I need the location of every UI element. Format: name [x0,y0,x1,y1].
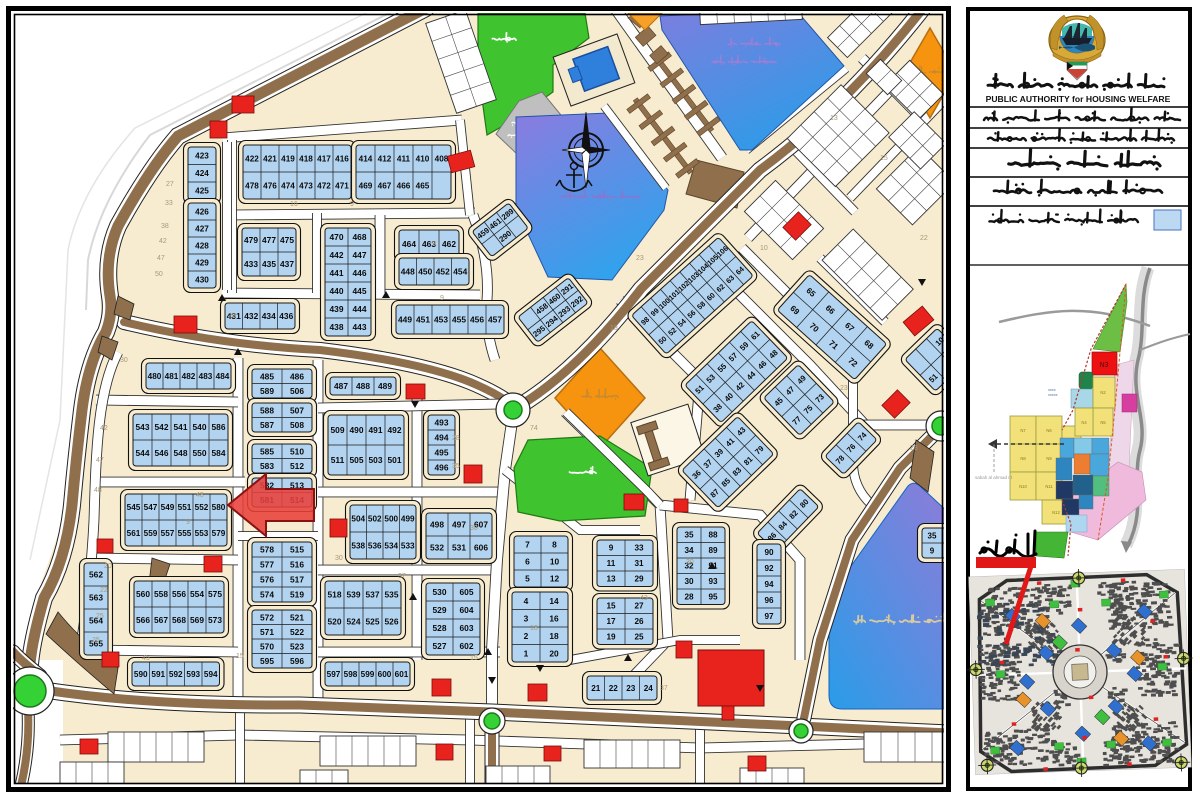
svg-text:38: 38 [161,223,169,230]
svg-text:510: 510 [290,446,304,456]
svg-text:432: 432 [244,311,258,321]
svg-text:sabah al ahmad rd: sabah al ahmad rd [975,475,1013,480]
svg-text:xxxxx: xxxxx [1048,393,1058,397]
svg-text:552: 552 [195,503,209,512]
svg-text:419: 419 [281,154,295,163]
svg-text:595: 595 [260,656,274,666]
svg-text:550: 550 [193,448,207,458]
svg-text:594: 594 [204,670,218,679]
svg-text:25: 25 [96,613,104,620]
svg-text:97: 97 [764,612,774,621]
svg-text:18: 18 [610,325,618,332]
svg-text:408: 408 [435,154,449,163]
svg-text:416: 416 [335,154,349,163]
svg-text:15: 15 [470,655,478,662]
svg-text:442: 442 [330,250,344,260]
svg-text:491: 491 [369,425,383,435]
svg-text:545: 545 [127,503,141,512]
svg-text:580: 580 [212,503,226,512]
svg-text:436: 436 [279,311,293,321]
svg-text:9: 9 [350,201,354,208]
svg-text:471: 471 [335,181,349,190]
svg-text:562: 562 [89,570,103,580]
svg-text:30: 30 [686,559,694,566]
svg-text:586: 586 [212,422,226,432]
svg-text:515: 515 [290,545,304,555]
svg-text:589: 589 [260,386,274,396]
svg-text:33: 33 [634,544,644,553]
svg-text:605: 605 [460,587,474,597]
svg-text:27: 27 [634,602,644,611]
svg-text:477: 477 [262,235,276,245]
svg-text:410: 410 [416,154,430,163]
svg-text:523: 523 [290,641,304,651]
svg-text:484: 484 [216,372,230,381]
svg-text:538: 538 [351,541,365,550]
svg-text:508: 508 [290,420,304,430]
svg-text:428: 428 [195,241,209,250]
svg-text:456: 456 [470,315,484,325]
svg-text:559: 559 [144,529,158,538]
svg-text:42: 42 [100,425,108,432]
svg-text:469: 469 [359,181,373,190]
svg-text:96: 96 [764,596,774,605]
svg-text:15: 15 [606,602,616,611]
svg-text:35: 35 [928,531,937,540]
svg-text:1: 1 [524,648,529,658]
svg-text:19: 19 [606,633,616,642]
svg-text:18: 18 [530,625,538,632]
svg-text:9: 9 [432,241,436,248]
svg-text:517: 517 [290,575,304,585]
svg-text:574: 574 [260,590,274,600]
svg-text:88: 88 [708,531,718,540]
svg-text:37: 37 [660,685,668,692]
svg-text:570: 570 [260,641,274,651]
svg-text:15: 15 [880,155,888,162]
svg-text:496: 496 [435,463,449,473]
svg-text:534: 534 [384,541,398,550]
svg-text:47: 47 [157,255,165,262]
svg-text:N7: N7 [1020,428,1026,433]
svg-text:506: 506 [290,386,304,396]
svg-text:492: 492 [388,425,402,435]
svg-text:604: 604 [460,605,474,615]
svg-text:543: 543 [136,422,150,432]
svg-text:579: 579 [212,529,226,538]
svg-text:603: 603 [460,623,474,633]
svg-text:90: 90 [764,548,774,557]
svg-text:25: 25 [92,637,100,644]
svg-text:447: 447 [353,250,367,260]
svg-text:522: 522 [290,627,304,637]
svg-text:93: 93 [708,577,718,586]
svg-text:544: 544 [136,448,150,458]
svg-text:6: 6 [525,557,530,567]
svg-text:533: 533 [401,541,415,550]
svg-text:569: 569 [190,615,204,625]
svg-text:598: 598 [344,670,358,679]
svg-text:27: 27 [166,181,174,188]
svg-text:74: 74 [530,425,538,432]
svg-text:N9: N9 [1046,456,1052,461]
svg-text:18: 18 [549,631,559,641]
svg-text:10: 10 [550,557,560,567]
svg-text:33: 33 [165,200,173,207]
svg-text:9: 9 [440,295,444,302]
svg-text:551: 551 [178,503,192,512]
svg-text:479: 479 [244,235,258,245]
svg-text:xxxx: xxxx [1048,388,1056,392]
svg-text:N2: N2 [1100,390,1106,395]
svg-text:524: 524 [347,617,361,627]
svg-text:478: 478 [245,181,259,190]
svg-text:16: 16 [549,613,559,623]
svg-text:571: 571 [260,627,274,637]
svg-text:418: 418 [299,154,313,163]
svg-text:7: 7 [525,540,530,550]
svg-text:N: N [581,135,590,150]
svg-text:531: 531 [452,543,466,553]
svg-text:47: 47 [96,457,104,464]
svg-text:441: 441 [330,268,344,278]
svg-text:16: 16 [290,201,298,208]
svg-text:530: 530 [433,587,447,597]
svg-text:583: 583 [260,461,274,471]
svg-text:493: 493 [435,418,449,428]
svg-text:430: 430 [195,275,209,284]
svg-text:30: 30 [470,525,478,532]
svg-text:30: 30 [120,357,128,364]
svg-text:575: 575 [208,589,222,599]
svg-text:438: 438 [330,322,344,332]
svg-text:535: 535 [385,590,399,600]
svg-text:9: 9 [930,546,935,555]
svg-text:4: 4 [524,596,529,606]
svg-text:43: 43 [640,595,648,602]
svg-text:468: 468 [353,232,367,242]
svg-text:26: 26 [634,617,644,626]
svg-text:593: 593 [186,670,200,679]
svg-text:435: 435 [262,259,276,269]
svg-text:3: 3 [524,613,529,623]
svg-text:23: 23 [840,385,848,392]
svg-text:473: 473 [299,181,313,190]
svg-text:21: 21 [591,684,601,693]
svg-text:557: 557 [161,529,175,538]
svg-text:602: 602 [460,641,474,651]
svg-text:451: 451 [416,315,430,325]
svg-text:499: 499 [401,514,415,523]
svg-text:536: 536 [368,541,382,550]
svg-text:23: 23 [626,684,636,693]
svg-text:599: 599 [361,670,375,679]
svg-text:529: 529 [433,605,447,615]
svg-text:554: 554 [190,589,204,599]
svg-text:443: 443 [353,322,367,332]
svg-text:445: 445 [353,286,367,296]
svg-text:540: 540 [193,422,207,432]
svg-text:504: 504 [351,514,365,523]
svg-text:13: 13 [606,575,616,584]
svg-text:495: 495 [435,448,449,458]
svg-text:525: 525 [366,617,380,627]
svg-text:N5: N5 [1100,420,1106,425]
svg-text:28: 28 [684,593,694,602]
svg-text:14: 14 [549,596,559,606]
svg-text:601: 601 [395,670,409,679]
svg-text:553: 553 [195,529,209,538]
svg-text:518: 518 [328,590,342,600]
svg-text:560: 560 [136,589,150,599]
svg-text:452: 452 [436,267,450,277]
svg-text:29: 29 [634,575,644,584]
svg-text:92: 92 [764,564,774,573]
svg-text:22: 22 [100,587,108,594]
svg-text:434: 434 [262,311,276,321]
svg-text:476: 476 [263,181,277,190]
svg-text:422: 422 [245,154,259,163]
svg-text:597: 597 [327,670,341,679]
svg-text:507: 507 [290,405,304,415]
svg-text:28: 28 [228,313,236,320]
svg-text:453: 453 [434,315,448,325]
svg-text:425: 425 [195,187,209,196]
svg-text:528: 528 [433,623,447,633]
svg-text:95: 95 [708,593,718,602]
svg-text:532: 532 [430,543,444,553]
svg-text:9: 9 [186,519,190,526]
svg-text:606: 606 [474,543,488,553]
svg-text:592: 592 [169,670,183,679]
svg-text:500: 500 [384,514,398,523]
svg-text:498: 498 [430,520,444,530]
svg-text:481: 481 [165,372,179,381]
svg-text:455: 455 [452,315,466,325]
svg-text:12: 12 [550,574,560,584]
svg-text:568: 568 [172,615,186,625]
svg-text:482: 482 [182,372,196,381]
svg-text:30: 30 [335,555,343,562]
svg-text:572: 572 [260,612,274,622]
svg-text:PUBLIC AUTHORITY for HOUSIN: PUBLIC AUTHORITY for HOUSING WELFARE [986,94,1171,104]
svg-text:548: 548 [174,448,188,458]
svg-text:23: 23 [636,255,644,262]
svg-text:547: 547 [144,503,158,512]
svg-text:N4: N4 [1081,420,1087,425]
svg-text:11: 11 [607,559,616,568]
svg-text:472: 472 [317,181,331,190]
svg-text:N3: N3 [1100,362,1109,369]
svg-text:429: 429 [195,258,209,267]
svg-text:590: 590 [134,670,148,679]
svg-text:17: 17 [606,617,616,626]
svg-text:578: 578 [260,545,274,555]
svg-text:2: 2 [524,631,529,641]
svg-text:423: 423 [195,152,209,161]
svg-text:542: 542 [155,422,169,432]
svg-text:465: 465 [416,181,430,190]
svg-text:585: 585 [260,446,274,456]
svg-text:457: 457 [488,315,502,325]
svg-text:449: 449 [398,315,412,325]
svg-text:509: 509 [331,425,345,435]
svg-text:520: 520 [328,617,342,627]
svg-text:561: 561 [127,529,141,538]
svg-text:24: 24 [644,684,654,693]
svg-text:31: 31 [634,559,644,568]
svg-text:512: 512 [290,461,304,471]
svg-text:421: 421 [263,154,277,163]
svg-text:15: 15 [236,653,244,660]
svg-text:600: 600 [378,670,392,679]
svg-text:N10: N10 [1019,484,1027,489]
svg-text:34: 34 [684,546,694,555]
svg-text:N12: N12 [1052,510,1060,515]
svg-text:556: 556 [172,589,186,599]
svg-text:596: 596 [290,656,304,666]
svg-text:467: 467 [378,181,392,190]
svg-text:50: 50 [155,271,163,278]
svg-text:454: 454 [453,267,467,277]
svg-text:433: 433 [244,259,258,269]
svg-text:490: 490 [350,425,364,435]
svg-text:414: 414 [359,154,373,163]
svg-text:516: 516 [290,560,304,570]
svg-text:485: 485 [260,371,274,381]
svg-text:13: 13 [830,115,838,122]
svg-text:42: 42 [159,238,167,245]
svg-text:22: 22 [920,235,928,242]
svg-text:566: 566 [136,615,150,625]
svg-text:5: 5 [525,574,530,584]
svg-text:45: 45 [142,655,150,662]
svg-text:439: 439 [330,304,344,314]
svg-text:501: 501 [388,455,402,465]
svg-text:497: 497 [452,520,466,530]
svg-text:9: 9 [609,544,614,553]
svg-text:541: 541 [174,422,188,432]
svg-text:558: 558 [154,589,168,599]
svg-text:470: 470 [330,232,344,242]
svg-text:567: 567 [154,615,168,625]
svg-text:448: 448 [401,267,415,277]
svg-text:10: 10 [760,245,768,252]
svg-text:537: 537 [366,590,380,600]
svg-text:563: 563 [89,593,103,603]
svg-text:25: 25 [634,633,644,642]
svg-text:511: 511 [331,455,345,465]
svg-text:35: 35 [452,463,460,470]
svg-text:48: 48 [94,487,102,494]
svg-text:446: 446 [353,268,367,278]
svg-text:462: 462 [442,239,456,249]
svg-text:549: 549 [161,503,175,512]
svg-text:576: 576 [260,575,274,585]
svg-text:475: 475 [280,235,294,245]
svg-text:N8: N8 [1020,456,1026,461]
svg-text:412: 412 [378,154,392,163]
svg-text:483: 483 [199,372,213,381]
svg-text:427: 427 [195,224,209,233]
svg-text:89: 89 [708,546,718,555]
svg-text:526: 526 [385,617,399,627]
svg-text:N11: N11 [1045,484,1053,489]
svg-text:411: 411 [397,154,411,163]
svg-text:444: 444 [353,304,367,314]
svg-text:474: 474 [281,181,295,190]
svg-text:489: 489 [378,381,392,391]
svg-text:519: 519 [290,590,304,600]
svg-text:23: 23 [910,445,918,452]
svg-text:94: 94 [764,580,774,589]
svg-text:588: 588 [260,405,274,415]
svg-text:437: 437 [280,259,294,269]
svg-text:466: 466 [397,181,411,190]
svg-text:539: 539 [347,590,361,600]
svg-text:521: 521 [290,612,304,622]
svg-text:555: 555 [178,529,192,538]
svg-text:424: 424 [195,169,209,178]
svg-text:527: 527 [433,641,447,651]
svg-text:584: 584 [212,448,226,458]
svg-text:503: 503 [369,455,383,465]
svg-text:464: 464 [402,239,416,249]
svg-text:450: 450 [418,267,432,277]
svg-text:591: 591 [151,670,165,679]
svg-text:48: 48 [196,492,204,499]
svg-text:417: 417 [317,154,331,163]
svg-text:8: 8 [552,540,557,550]
svg-text:505: 505 [350,455,364,465]
svg-text:440: 440 [330,286,344,296]
svg-text:426: 426 [195,207,209,216]
svg-text:20: 20 [549,648,559,658]
svg-text:35: 35 [684,531,694,540]
svg-text:488: 488 [356,381,370,391]
svg-text:546: 546 [155,448,169,458]
svg-text:502: 502 [368,514,382,523]
svg-text:30: 30 [684,577,694,586]
svg-text:480: 480 [148,372,162,381]
svg-text:28: 28 [452,435,460,442]
svg-text:37: 37 [398,573,406,580]
svg-text:487: 487 [334,381,348,391]
svg-text:587: 587 [260,420,274,430]
svg-text:573: 573 [208,615,222,625]
svg-text:494: 494 [435,433,449,443]
svg-text:22: 22 [609,684,619,693]
svg-text:20: 20 [104,563,112,570]
svg-text:577: 577 [260,560,274,570]
svg-text:N6: N6 [1046,428,1052,433]
svg-text:486: 486 [290,371,304,381]
